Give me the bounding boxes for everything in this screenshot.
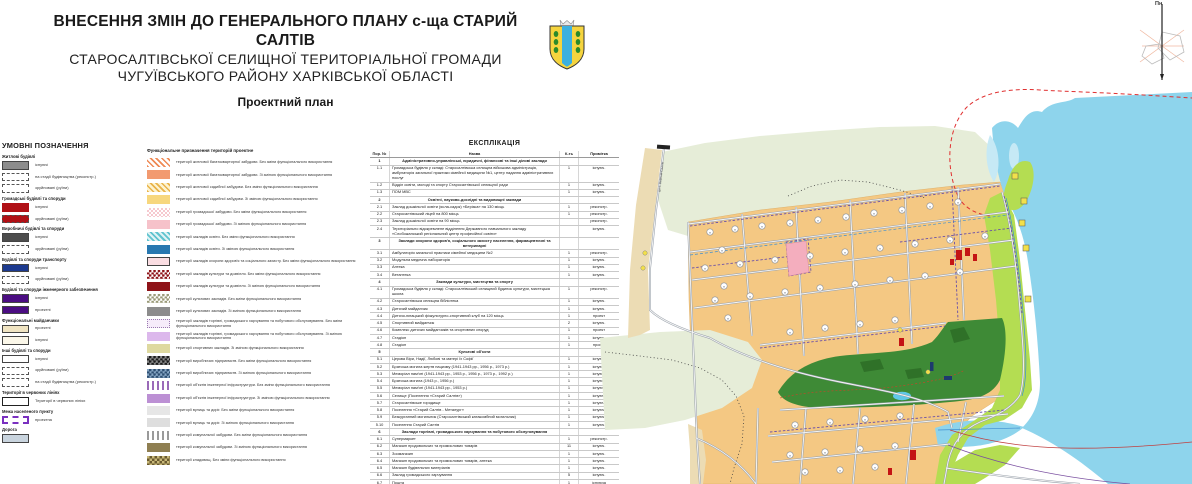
plan-map: до с. Верхній Салтів Пн bbox=[0, 0, 1192, 484]
north-label: Пн bbox=[1155, 1, 1162, 7]
public-block-pink bbox=[786, 241, 809, 276]
road-end-marker bbox=[657, 145, 670, 150]
compass-pentagons bbox=[1142, 32, 1184, 64]
plan-sheet: ВНЕСЕННЯ ЗМІН ДО ГЕНЕРАЛЬНОГО ПЛАНУ с-ща… bbox=[0, 0, 1192, 484]
north-arrow: Пн bbox=[1140, 1, 1184, 80]
north-arrowhead bbox=[1160, 74, 1164, 80]
beige-roadside bbox=[628, 148, 662, 338]
